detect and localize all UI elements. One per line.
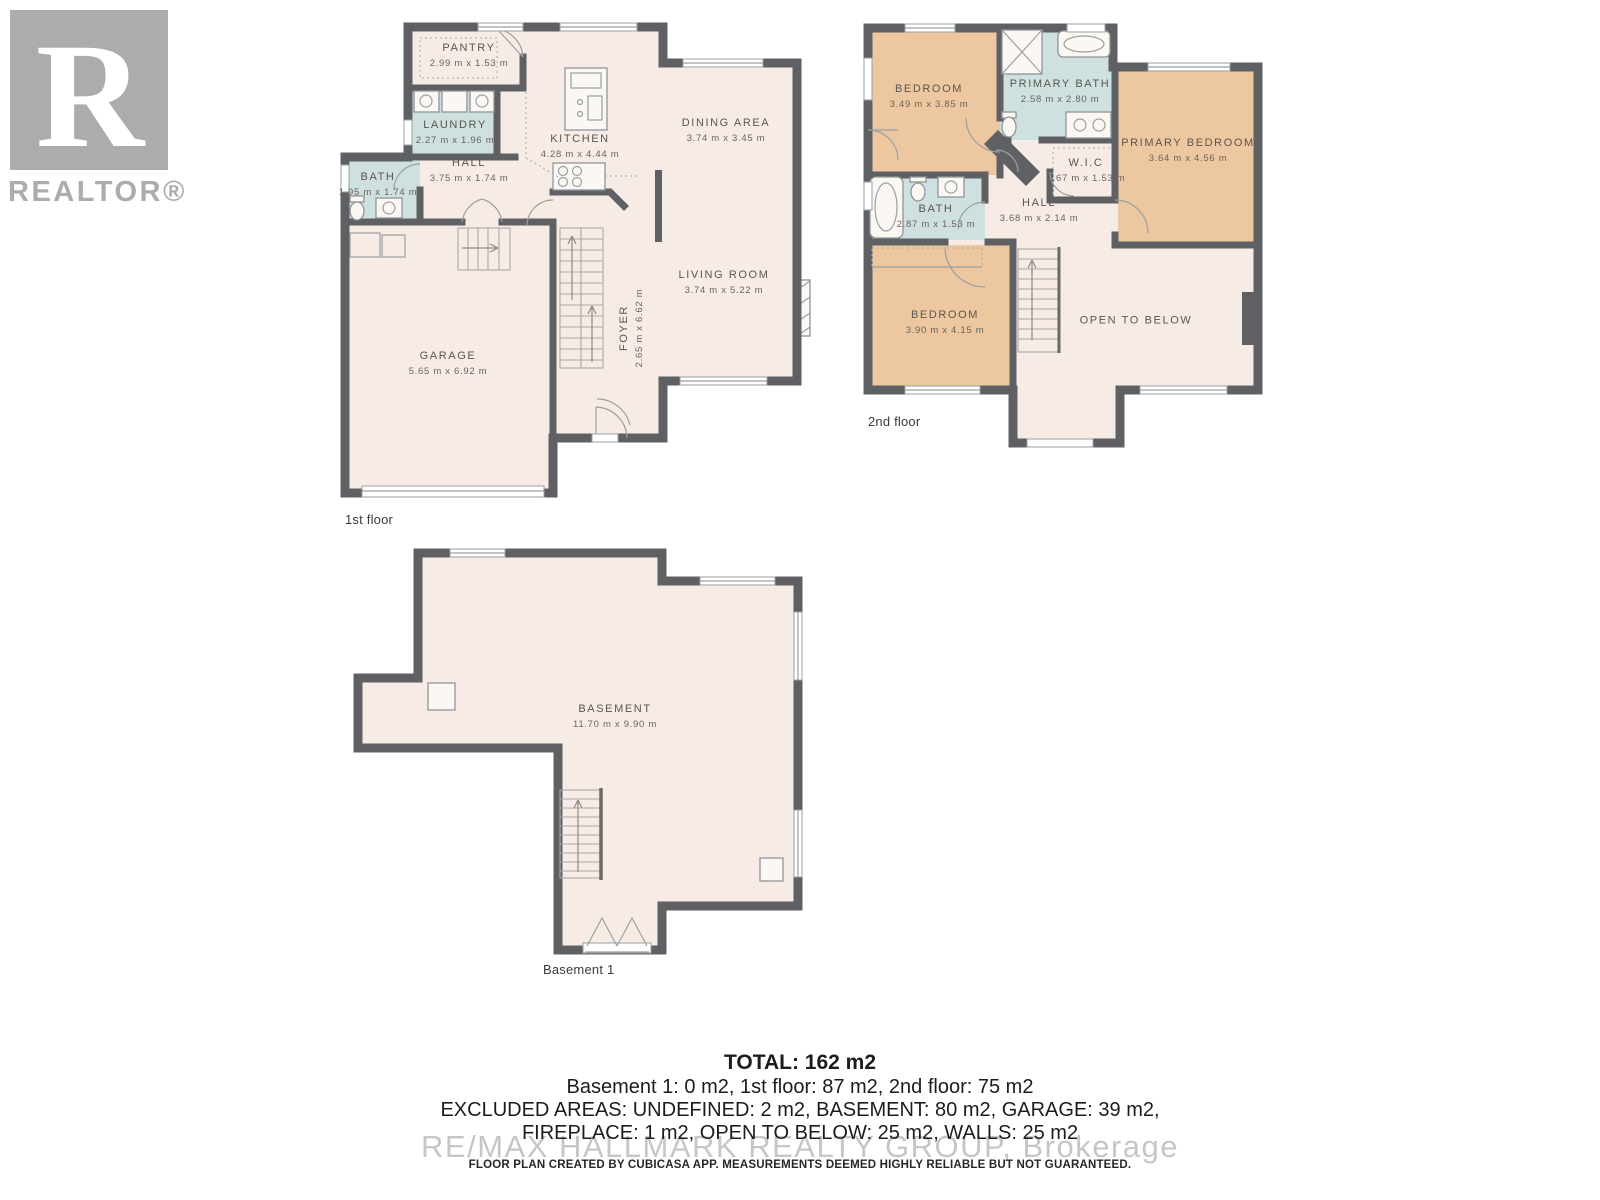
realtor-logo-letter: R (36, 13, 146, 179)
floorplans-canvas: .wallx{stroke:#5f6063;stroke-width:9;fil… (0, 0, 1600, 1200)
realtor-wordmark: REALTOR® (8, 176, 228, 209)
floor-label-basement: Basement 1 (543, 962, 614, 977)
floor-label-2nd: 2nd floor (868, 414, 920, 429)
total-area-line: TOTAL: 162 m2 (0, 1051, 1600, 1075)
excluded-areas-line-1: EXCLUDED AREAS: UNDEFINED: 2 m2, BASEMEN… (0, 1099, 1600, 1122)
disclaimer-line: FLOOR PLAN CREATED BY CUBICASA APP. MEAS… (0, 1159, 1600, 1171)
plan-second-floor (864, 24, 1258, 447)
floor-areas-line: Basement 1: 0 m2, 1st floor: 87 m2, 2nd … (0, 1076, 1600, 1099)
floor-label-1st: 1st floor (345, 512, 393, 527)
floorplan-sheet: .wallx{stroke:#5f6063;stroke-width:9;fil… (0, 0, 1600, 1200)
realtor-logo: R (10, 10, 168, 179)
plan-first-floor (341, 23, 810, 497)
excluded-areas-line-2: FIREPLACE: 1 m2, OPEN TO BELOW: 25 m2, W… (0, 1122, 1600, 1145)
plan-basement (358, 549, 802, 953)
